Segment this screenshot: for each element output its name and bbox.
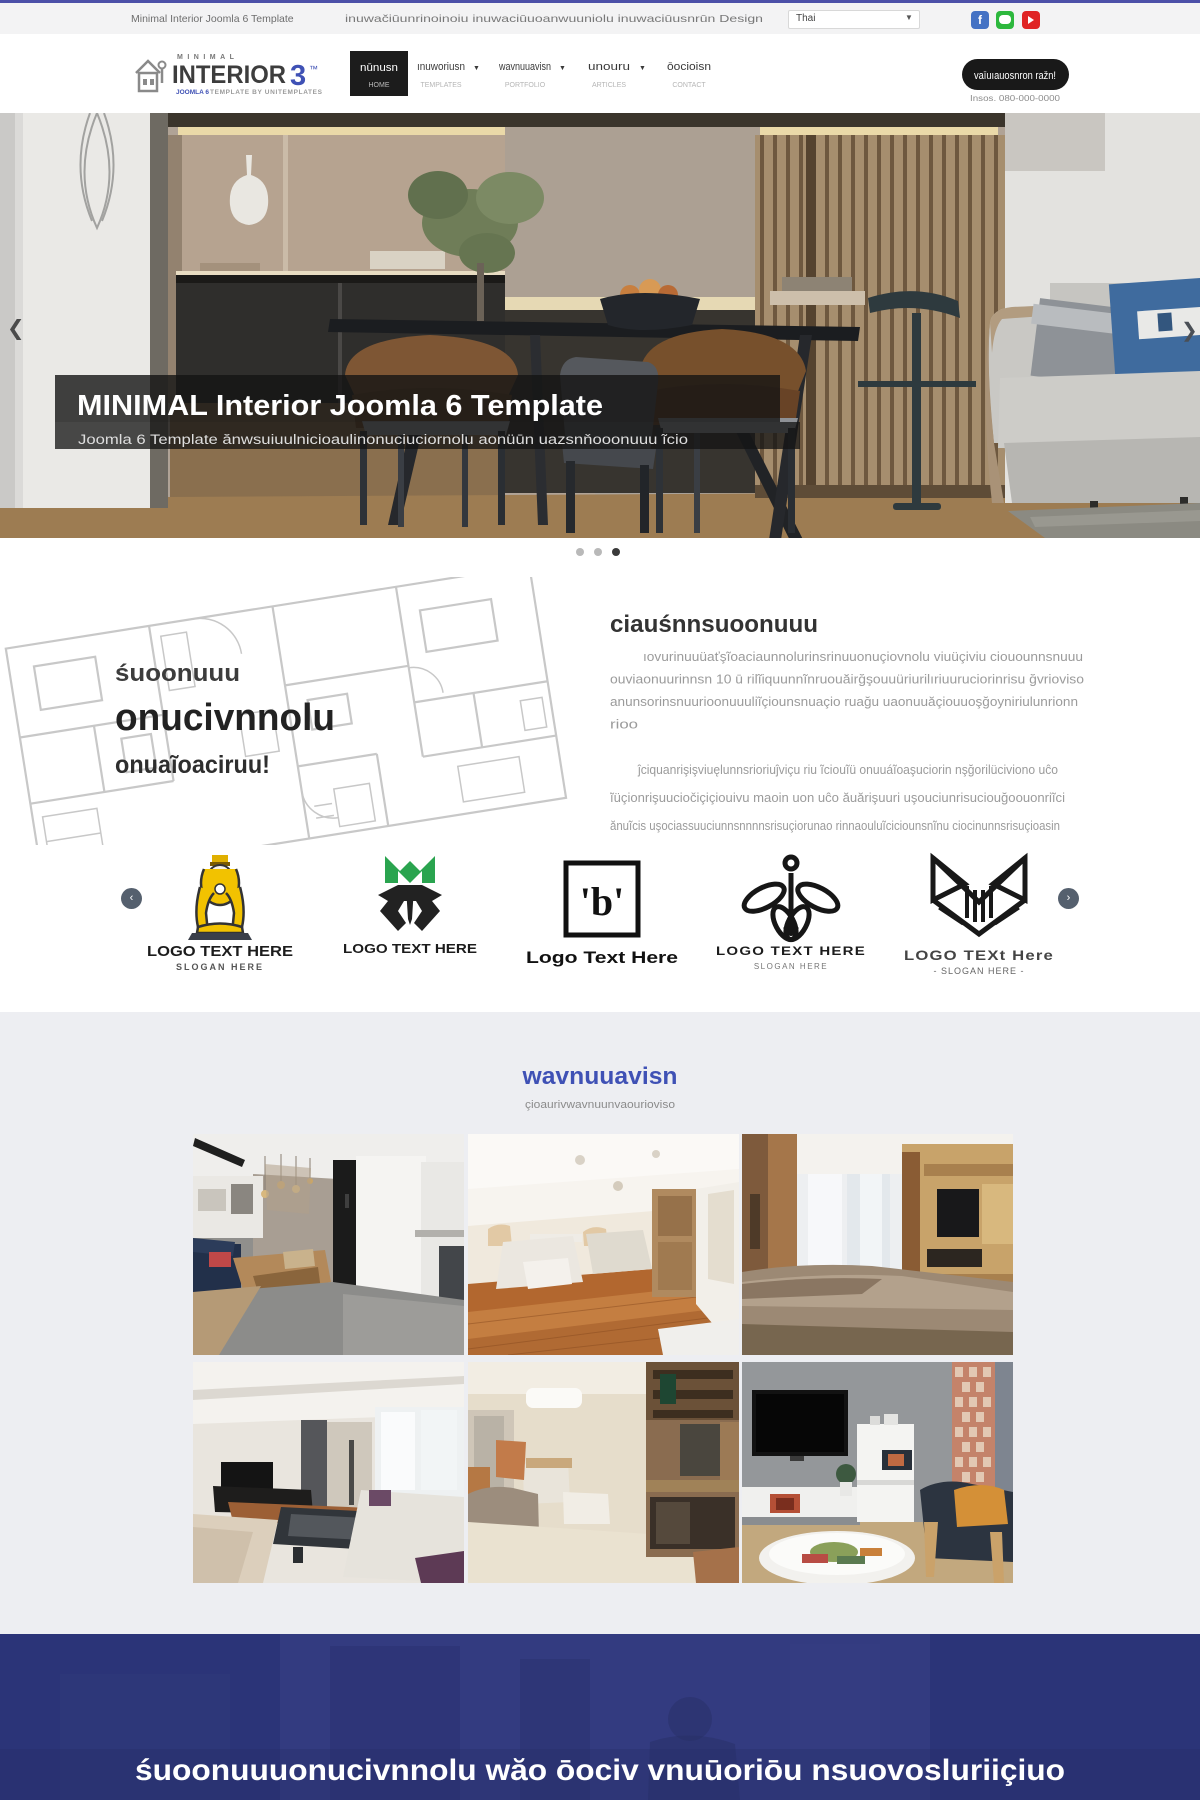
svg-text:CONTACT: CONTACT bbox=[672, 82, 706, 89]
svg-text:Logo Text Here: Logo Text Here bbox=[526, 948, 678, 967]
svg-text:śuoonuuuonucivnnolu wăo ōociv: śuoonuuuonucivnnolu wăo ōociv vnuūoriōu … bbox=[135, 1754, 1065, 1787]
svg-text:nūnusn: nūnusn bbox=[360, 62, 398, 74]
svg-text:'b': 'b' bbox=[580, 879, 624, 924]
svg-text:ĵciquanrişişviuęlunnsrioriuĵvi: ĵciquanrişişviuęlunnsrioriuĵviçu riu ĩci… bbox=[637, 763, 1058, 777]
svg-text:❯: ❯ bbox=[1181, 320, 1198, 342]
svg-text:▼: ▼ bbox=[639, 65, 646, 72]
svg-text:unouru: unouru bbox=[588, 61, 630, 73]
svg-text:çioaurivwavnuunvaourioviso: çioaurivwavnuunvaourioviso bbox=[525, 1099, 675, 1111]
svg-text:ciauśnnsuoonuuu: ciauśnnsuoonuuu bbox=[610, 611, 818, 638]
svg-text:inuwačiūunrinoinoiu inuwaciūuo: inuwačiūunrinoinoiu inuwaciūuoanwuuniolu… bbox=[345, 13, 763, 25]
svg-text:HOME: HOME bbox=[369, 82, 390, 89]
svg-text:MINIMAL Interior Joomla 6 Temp: MINIMAL Interior Joomla 6 Template bbox=[77, 390, 603, 422]
svg-text:ıovurinuuüaťşĩoaciaunnolurinsr: ıovurinuuüaťşĩoaciaunnolurinsrinuuonuçio… bbox=[643, 650, 1083, 664]
svg-text:- SLOGAN HERE -: - SLOGAN HERE - bbox=[933, 966, 1024, 976]
svg-text:LOGO TEXt Here: LOGO TEXt Here bbox=[904, 947, 1054, 963]
svg-text:Insos. 080-000-0000: Insos. 080-000-0000 bbox=[970, 93, 1060, 103]
svg-text:anunsorinsnuurioonuuuliĩçiouns: anunsorinsnuurioonuuuliĩçiounsnuaçio rua… bbox=[610, 695, 1078, 709]
svg-text:❮: ❮ bbox=[7, 317, 25, 341]
svg-text:SLOGAN HERE: SLOGAN HERE bbox=[754, 962, 828, 971]
svg-text:ınuworiusn: ınuworiusn bbox=[417, 61, 465, 73]
svg-text:onuaĩoaciruu!: onuaĩoaciruu! bbox=[115, 751, 270, 779]
svg-text:PORTFOLIO: PORTFOLIO bbox=[505, 82, 546, 89]
svg-text:LOGO TEXT HERE: LOGO TEXT HERE bbox=[147, 943, 293, 960]
svg-text:TEMPLATE BY UNITEMPLATES: TEMPLATE BY UNITEMPLATES bbox=[210, 89, 323, 96]
svg-text:wavnuuavisn: wavnuuavisn bbox=[498, 61, 551, 73]
svg-text:ănuĩcis uşociassuuciunnsnnnnsr: ănuĩcis uşociassuuciunnsnnnnsrisuçioruna… bbox=[610, 819, 1060, 833]
svg-text:ARTICLES: ARTICLES bbox=[592, 82, 626, 89]
svg-text:rioo: rioo bbox=[610, 718, 638, 732]
svg-text:™: ™ bbox=[309, 64, 318, 74]
svg-text:śuoonuuu: śuoonuuu bbox=[115, 660, 240, 687]
svg-text:onucivnnolu: onucivnnolu bbox=[115, 697, 335, 739]
svg-text:Joomla 6 Template ănwsuiuulnic: Joomla 6 Template ănwsuiuulnicioaulinonu… bbox=[78, 432, 688, 447]
svg-text:▼: ▼ bbox=[559, 65, 566, 72]
svg-text:ouviaonuurinnsn 10 ū rilĩiquun: ouviaonuurinnsn 10 ū rilĩiquunnĩnruouăir… bbox=[610, 673, 1084, 687]
svg-text:vaīuıauosnron ražn!: vaīuıauosnron ražn! bbox=[974, 70, 1056, 82]
svg-text:TEMPLATES: TEMPLATES bbox=[420, 82, 461, 89]
svg-text:LOGO TEXT HERE: LOGO TEXT HERE bbox=[716, 944, 866, 958]
svg-text:JOOMLA 6: JOOMLA 6 bbox=[176, 89, 209, 96]
svg-text:ōocioisn: ōocioisn bbox=[667, 61, 711, 73]
svg-text:SLOGAN HERE: SLOGAN HERE bbox=[176, 962, 264, 972]
svg-text:ĩüçionrişuuciočiçiçiouivu maoi: ĩüçionrişuuciočiçiçiouivu maoin uon uĉo … bbox=[610, 791, 1065, 805]
svg-text:wavnuuavisn: wavnuuavisn bbox=[521, 1063, 677, 1090]
svg-text:LOGO TEXT HERE: LOGO TEXT HERE bbox=[343, 941, 477, 956]
svg-text:INTERIOR: INTERIOR bbox=[172, 61, 286, 89]
svg-text:▼: ▼ bbox=[473, 65, 480, 72]
